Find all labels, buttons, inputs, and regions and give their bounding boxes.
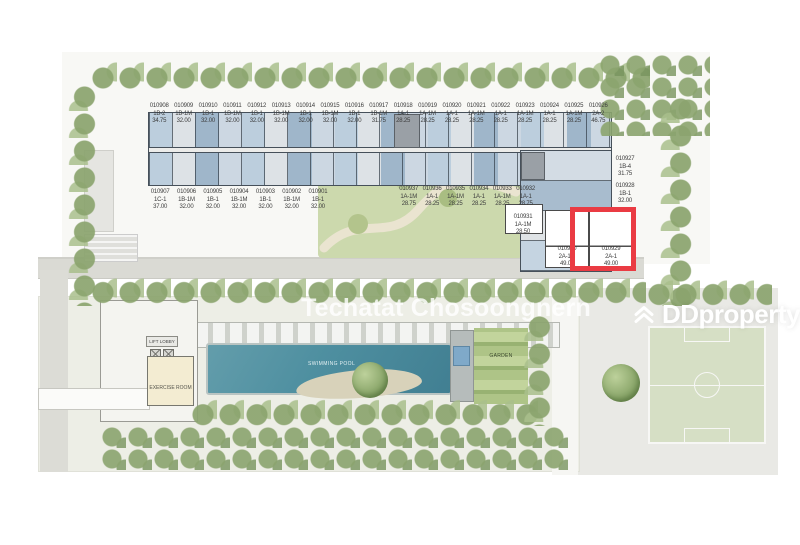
unit-label: 0109181A-128.25 — [391, 103, 415, 126]
swimming-pool-label: SWIMMING POOL — [308, 361, 355, 367]
unit-label: 0109371A-1M28.75 — [397, 186, 420, 209]
exercise-room-label: EXERCISE ROOM — [149, 385, 191, 391]
unit-label: 0109211A-1M28.25 — [464, 103, 488, 126]
tree-row-pool-deck — [190, 396, 538, 430]
unit-label-010927: 0109271B-431.75 — [604, 156, 646, 179]
unit-label: 0109221A-128.25 — [488, 103, 512, 126]
drop-off-canopy — [38, 388, 150, 410]
tree — [602, 364, 640, 402]
unit-row-southwest-labels: 0109071C-137.00 0109061B-1M32.00 0109051… — [147, 189, 331, 212]
ddproperty-logo-text: DDproperty — [662, 299, 800, 330]
unit-label: 0109171B-1M31.75 — [367, 103, 391, 126]
unit-label: 0109341A-128.25 — [467, 186, 490, 209]
highlighted-unit-box — [570, 207, 636, 271]
unit-label: 0109241A-128.25 — [537, 103, 561, 126]
unit-label: 0109201A-128.25 — [440, 103, 464, 126]
unit-label: 0109051B-132.00 — [200, 189, 226, 212]
ddproperty-house-icon — [632, 292, 656, 336]
unit-label: 0109011B-132.00 — [305, 189, 331, 212]
unit-label: 0109081B-234.75 — [147, 103, 171, 126]
wing-lift-core — [521, 152, 545, 180]
pool-pavilion — [450, 330, 474, 402]
unit-label-010928: 0109281B-132.00 — [604, 183, 646, 206]
ddproperty-logo: DDproperty — [632, 288, 800, 340]
unit-label: 0109021B-1M32.00 — [278, 189, 304, 212]
exercise-room: EXERCISE ROOM — [147, 356, 194, 406]
unit-label: 0109101B-132.00 — [196, 103, 220, 126]
tree — [352, 362, 388, 398]
unit-label: 0109041B-1M32.00 — [226, 189, 252, 212]
tree-row-top — [90, 56, 650, 96]
lift-lobby-room: LIFT LOBBY — [146, 336, 178, 347]
photographer-watermark: Techatat Chosoongnern — [278, 294, 614, 323]
unit-label: 0109351A-1M28.25 — [444, 186, 467, 209]
field-center-circle — [694, 372, 720, 398]
tree-column-garden — [524, 314, 552, 426]
pavilion-glass — [453, 346, 470, 366]
garden-area — [474, 328, 528, 404]
unit-label: 0109031B-132.00 — [252, 189, 278, 212]
unit-label: 0109131B-1M32.00 — [269, 103, 293, 126]
unit-label: 0109151B-1M32.00 — [318, 103, 342, 126]
unit-label: 0109231A-1M28.25 — [513, 103, 537, 126]
unit-label: 0109071C-137.00 — [147, 189, 173, 212]
garden-label: GARDEN — [478, 353, 524, 359]
sports-field — [648, 326, 766, 444]
unit-label: 0109121B-132.00 — [245, 103, 269, 126]
unit-label: 0109331A-1M28.25 — [491, 186, 514, 209]
unit-row-north-labels: 0109081B-234.75 0109091B-1M32.00 0109101… — [147, 103, 610, 126]
side-road — [40, 270, 68, 472]
unit-label: 0109091B-1M32.00 — [171, 103, 195, 126]
unit-label: 0109191A-1M28.25 — [415, 103, 439, 126]
field-goal-box — [684, 428, 730, 442]
unit-row-southeast-labels: 0109371A-1M28.75 0109361A-128.25 0109351… — [397, 186, 537, 209]
tree-column-left — [68, 84, 98, 306]
unit-label-010931: 0109311A-1M28.50 — [502, 214, 544, 237]
unit-label: 0109161B-132.00 — [342, 103, 366, 126]
site-plan-image: 0109081B-234.75 0109091B-1M32.00 0109101… — [0, 0, 800, 545]
unit-label: 0109111B-1M32.00 — [220, 103, 244, 126]
unit-label: 0109141B-132.00 — [293, 103, 317, 126]
unit-label: 0109262A-246.75 — [586, 103, 610, 126]
unit-label: 0109061B-1M32.00 — [173, 189, 199, 212]
tree-column-right — [652, 96, 704, 306]
unit-label: 0109321A-128.75 — [514, 186, 537, 209]
unit-label: 0109251A-1M28.25 — [562, 103, 586, 126]
unit-label: 0109361A-128.25 — [420, 186, 443, 209]
tree-rows-bottom — [100, 426, 570, 470]
